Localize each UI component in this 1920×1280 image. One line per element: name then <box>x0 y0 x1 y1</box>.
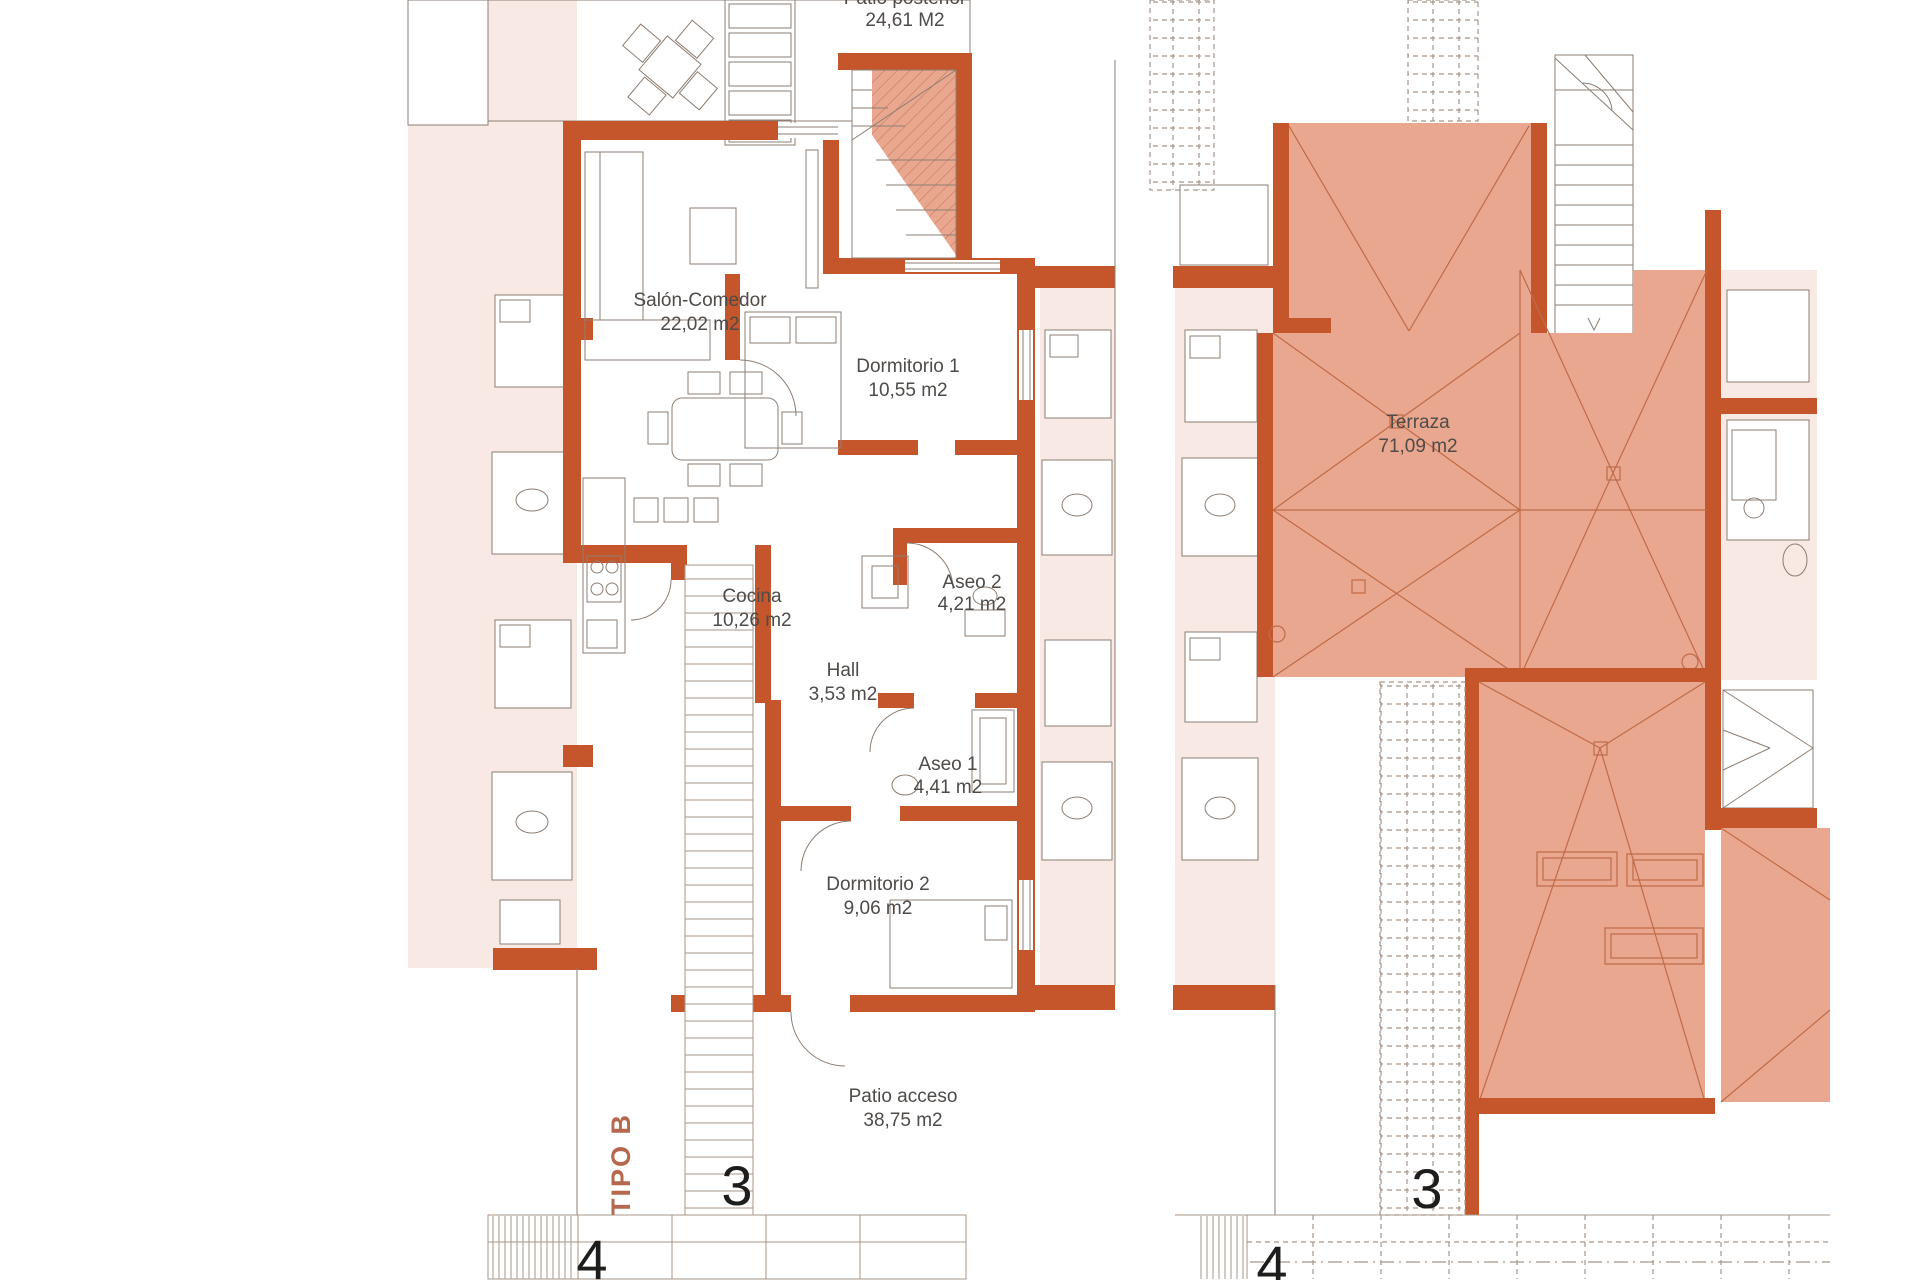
room-label-terraza: Terraza <box>1386 412 1450 433</box>
room-label-dormitorio1: Dormitorio 1 <box>856 356 959 377</box>
room-area-hall: 3,53 m2 <box>809 684 878 705</box>
patio-table-icon <box>600 0 741 137</box>
room-area-dormitorio2: 9,06 m2 <box>844 898 913 919</box>
room-label-dormitorio2: Dormitorio 2 <box>826 874 929 895</box>
left-plan-unit-number: 3 <box>721 1154 752 1217</box>
room-area-patio: 38,75 m2 <box>863 1110 942 1131</box>
right-plan-unit-number: 3 <box>1411 1157 1442 1220</box>
right-plan-roof-lower <box>1465 668 1715 1215</box>
right-plan-right-neighbor-strip <box>1715 270 1830 1102</box>
right-plan-stairs <box>1555 55 1633 340</box>
left-plan-stairs <box>852 70 956 258</box>
right-neighbor-stairs <box>1723 690 1813 808</box>
dining-table <box>648 372 802 486</box>
right-plan-walkway-top <box>1408 0 1478 121</box>
door-swings <box>631 360 953 1066</box>
right-plan-roof-top <box>1273 123 1547 335</box>
room-label-aseo1: Aseo 1 <box>918 754 977 775</box>
floorplan-page: Patio posterior 24,61 M2 <box>0 0 1920 1280</box>
left-plan-walkway-stairs <box>685 565 753 1215</box>
top-room-label: Patio posterior <box>844 0 967 9</box>
top-room-area: 24,61 M2 <box>865 10 944 31</box>
room-label-hall: Hall <box>827 660 860 681</box>
right-plan: Terraza 71,09 m2 <box>1150 0 1830 1280</box>
room-label-cocina: Cocina <box>722 586 782 607</box>
left-plan-sidewalk <box>488 1215 966 1279</box>
left-plan-sidewalk-number: 4 <box>576 1228 607 1280</box>
room-area-cocina: 10,26 m2 <box>712 610 791 631</box>
room-label-patio: Patio acceso <box>849 1086 958 1107</box>
left-plan: Patio posterior 24,61 M2 <box>408 0 1115 1280</box>
room-area-dormitorio1: 10,55 m2 <box>868 380 947 401</box>
neighbor-walkway-top <box>1150 0 1214 190</box>
room-area-aseo1: 4,41 m2 <box>914 777 983 798</box>
room-area-aseo2: 4,21 m2 <box>938 594 1007 615</box>
room-label-salon: Salón-Comedor <box>633 290 767 311</box>
room-area-terraza: 71,09 m2 <box>1378 436 1457 457</box>
floor-plan-canvas: Patio posterior 24,61 M2 <box>0 0 1920 1280</box>
type-label: TIPO B <box>606 1113 636 1215</box>
right-plan-sidewalk-number: 4 <box>1256 1234 1287 1280</box>
room-area-salon: 22,02 m2 <box>660 314 739 335</box>
bed-dormitorio1 <box>745 312 841 448</box>
room-label-aseo2: Aseo 2 <box>942 572 1001 593</box>
right-plan-walkway-bottom <box>1380 682 1465 1215</box>
left-plan-walls <box>563 53 1035 1012</box>
